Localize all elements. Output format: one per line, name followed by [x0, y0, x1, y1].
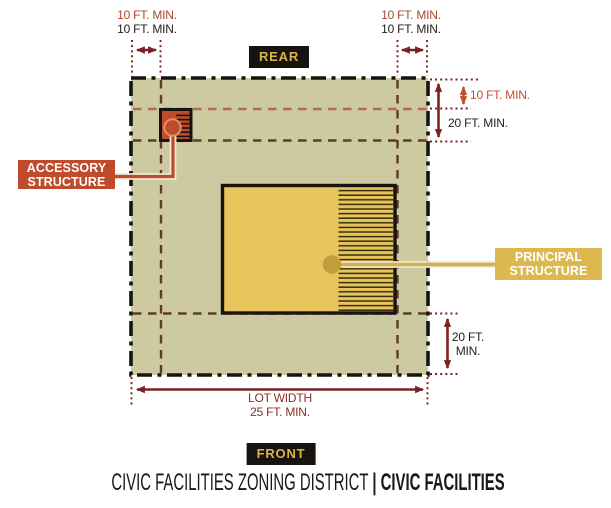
dim-label: 10 FT. MIN. [117, 9, 177, 23]
accessory-label-line2: STRUCTURE [28, 175, 106, 189]
dim-label: 20 FT. [452, 331, 484, 345]
diagram-caption: CIVIC FACILITIES ZONING DISTRICT | CIVIC… [111, 469, 504, 497]
rear-badge: REAR [249, 46, 309, 68]
accessory-structure-label: ACCESSORY STRUCTURE [18, 160, 115, 189]
dim-label: 10 FT. MIN. [117, 23, 177, 37]
zoning-setback-diagram: 10 FT. MIN. 10 FT. MIN. 10 FT. MIN. 10 F… [0, 0, 611, 508]
accessory-label-line1: ACCESSORY [27, 161, 107, 175]
principal-marker-dot [323, 255, 341, 273]
rear-right-setback-dims: 10 FT. MIN. 10 FT. MIN. [381, 9, 441, 36]
side-principal-dim: 20 FT. MIN. [448, 117, 508, 131]
front-badge: FRONT [247, 443, 316, 465]
side-accessory-dim: 10 FT. MIN. [470, 89, 530, 103]
caption-district: CIVIC FACILITIES ZONING DISTRICT [111, 469, 368, 496]
rear-left-setback-dims: 10 FT. MIN. 10 FT. MIN. [117, 9, 177, 36]
dim-label: LOT WIDTH [248, 392, 312, 406]
accessory-marker-dot [164, 119, 180, 135]
dim-label: 10 FT. MIN. [381, 9, 441, 23]
principal-structure-shape [223, 186, 497, 314]
lot-width-dim: LOT WIDTH 25 FT. MIN. [248, 392, 312, 419]
principal-label-line2: STRUCTURE [510, 264, 588, 278]
dim-label: 25 FT. MIN. [248, 406, 312, 420]
principal-structure-label: PRINCIPAL STRUCTURE [495, 248, 602, 280]
caption-separator: | [372, 469, 376, 496]
principal-label-line1: PRINCIPAL [515, 250, 582, 264]
principal-hatch [339, 188, 394, 311]
front-setback-dim: 20 FT. MIN. [452, 331, 484, 358]
dim-label: 10 FT. MIN. [381, 23, 441, 37]
caption-zone: CIVIC FACILITIES [381, 469, 505, 496]
dim-label: MIN. [452, 345, 484, 359]
